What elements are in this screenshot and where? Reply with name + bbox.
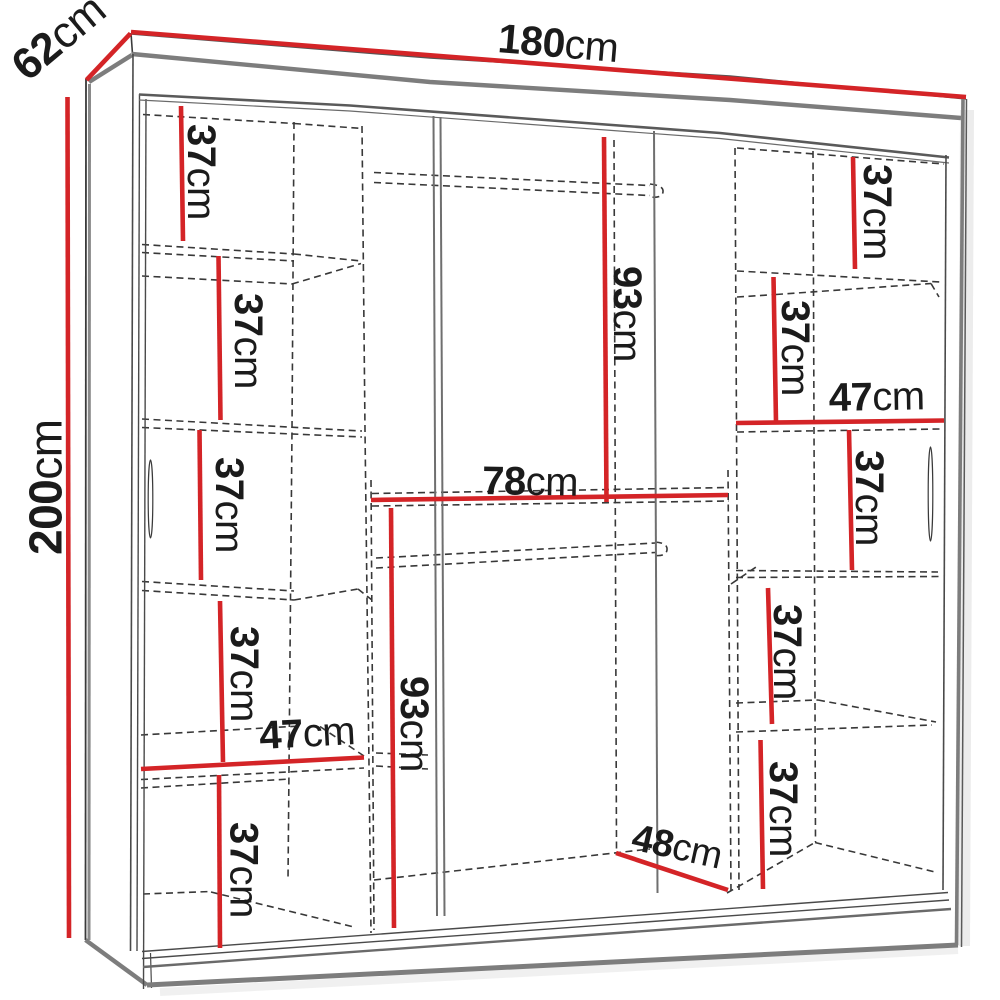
svg-text:93cm: 93cm bbox=[392, 676, 436, 772]
svg-text:200cm: 200cm bbox=[20, 419, 72, 555]
svg-text:47cm: 47cm bbox=[828, 374, 925, 420]
svg-text:37cm: 37cm bbox=[855, 164, 899, 260]
svg-text:37cm: 37cm bbox=[226, 293, 270, 389]
svg-text:37cm: 37cm bbox=[773, 300, 817, 396]
svg-text:78cm: 78cm bbox=[482, 459, 579, 505]
svg-text:37cm: 37cm bbox=[207, 457, 251, 553]
svg-text:37cm: 37cm bbox=[847, 450, 891, 546]
svg-text:37cm: 37cm bbox=[222, 822, 266, 918]
svg-text:37cm: 37cm bbox=[222, 626, 266, 722]
svg-text:37cm: 37cm bbox=[179, 124, 223, 220]
svg-text:47cm: 47cm bbox=[258, 709, 356, 758]
svg-text:37cm: 37cm bbox=[765, 604, 809, 700]
svg-text:93cm: 93cm bbox=[605, 266, 649, 362]
svg-text:37cm: 37cm bbox=[761, 761, 805, 857]
